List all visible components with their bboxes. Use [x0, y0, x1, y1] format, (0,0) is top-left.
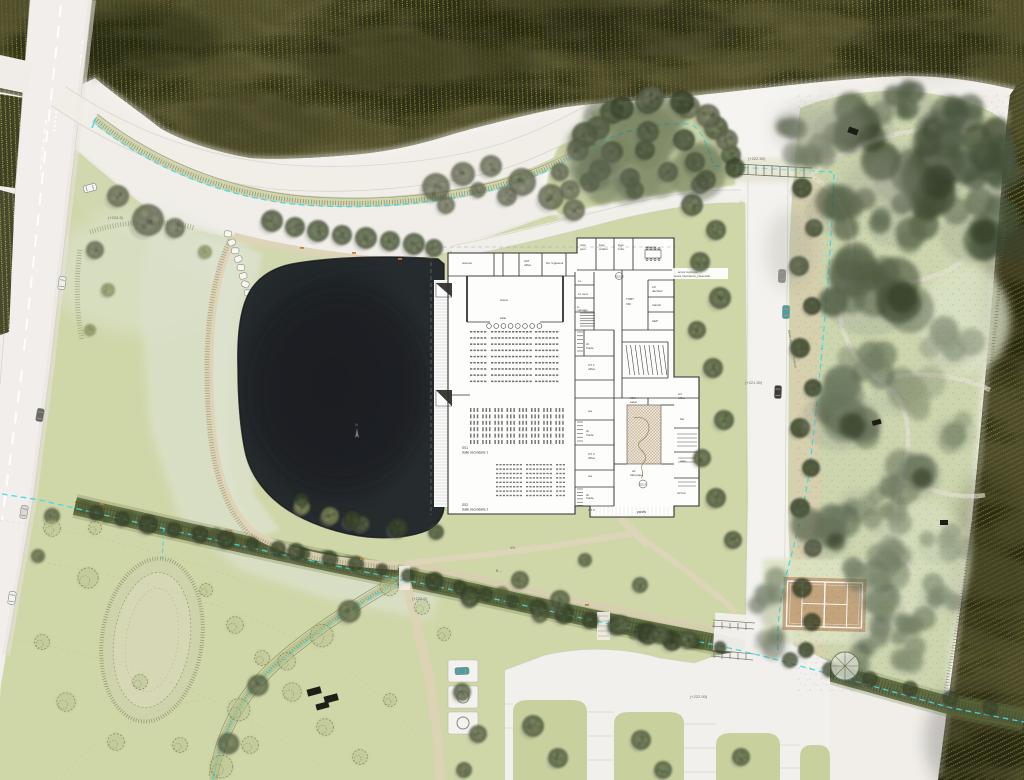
svg-text:salon: salon [630, 400, 638, 404]
svg-text:B →: B → [496, 569, 503, 573]
svg-text:rés.: rés. [588, 409, 593, 413]
svg-text:(+222.00): (+222.00) [690, 694, 708, 699]
svg-text:Salle secondaire 1: Salle secondaire 1 [462, 451, 488, 455]
svg-text:SS1: SS1 [462, 446, 468, 450]
svg-text:office: office [588, 367, 595, 371]
svg-text:indiv.: indiv. [618, 247, 625, 251]
svg-text:221.9: 221.9 [639, 483, 646, 487]
svg-text:vest.: vest. [680, 459, 687, 463]
svg-text:TGBT: TGBT [626, 297, 634, 301]
svg-text:A2 bar: A2 bar [677, 491, 686, 495]
svg-text:4%: 4% [510, 546, 515, 550]
svg-text:(+224.5): (+224.5) [108, 215, 124, 220]
svg-text:N: N [355, 422, 358, 427]
svg-text:scène: scène [500, 298, 508, 302]
svg-text:Lv: Lv [578, 279, 582, 283]
svg-text:froide: froide [586, 496, 594, 500]
svg-text:office: office [524, 263, 531, 267]
svg-text:collect.: collect. [599, 247, 609, 251]
svg-text:office: office [678, 396, 685, 400]
svg-text:bur régisseur: bur régisseur [546, 261, 564, 265]
svg-text:ménage: ménage [577, 308, 588, 312]
svg-text:bar: bar [680, 417, 684, 421]
svg-text:(+222.0): (+222.0) [412, 596, 428, 601]
svg-text:pers.: pers. [580, 247, 587, 251]
svg-text:salle: salle [500, 316, 507, 320]
svg-text:Salle secondaire 2: Salle secondaire 2 [462, 508, 488, 512]
svg-text:catering: catering [645, 245, 656, 249]
svg-text:LL vest.: LL vest. [578, 292, 589, 296]
svg-text:déchets: déchets [652, 289, 663, 293]
svg-text:parvis: parvis [637, 510, 646, 514]
svg-text:(+221.87): (+221.87) [612, 621, 630, 626]
svg-text:(+221.50): (+221.50) [745, 380, 763, 385]
svg-text:(+222.50): (+222.50) [748, 156, 766, 161]
svg-text:réserve: réserve [462, 261, 472, 265]
svg-text:accès intendance_passerelle: accès intendance_passerelle [674, 274, 711, 278]
svg-text:froide: froide [586, 433, 594, 437]
svg-text:hall-pique: hall-pique [630, 473, 643, 477]
svg-text:rés.: rés. [588, 474, 593, 478]
svg-text:223.09: 223.09 [615, 275, 624, 279]
svg-text:AEP: AEP [652, 319, 658, 323]
svg-text:SS2: SS2 [462, 503, 468, 507]
svg-text:office: office [588, 456, 595, 460]
svg-text:froide: froide [586, 346, 594, 350]
svg-text:transfo: transfo [652, 303, 662, 307]
svg-text:VDI: VDI [626, 302, 631, 306]
svg-text:OT 3: OT 3 [588, 508, 595, 512]
